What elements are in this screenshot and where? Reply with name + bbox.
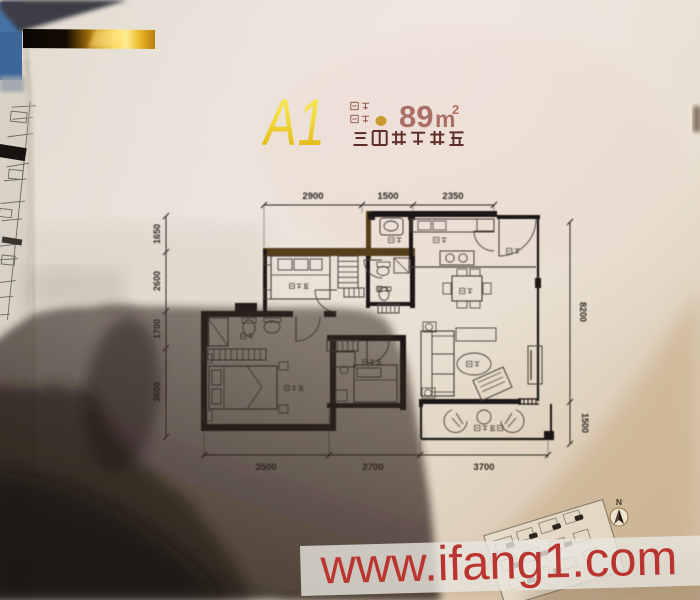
svg-text:2: 2 xyxy=(452,102,459,117)
svg-text:8200: 8200 xyxy=(578,302,588,322)
svg-text:89: 89 xyxy=(399,99,433,134)
svg-text:1500: 1500 xyxy=(377,191,398,202)
svg-text:1500: 1500 xyxy=(580,413,590,433)
svg-text:2350: 2350 xyxy=(442,191,463,202)
svg-text:www.ifang1.com: www.ifang1.com xyxy=(319,531,678,594)
svg-text:3700: 3700 xyxy=(473,462,494,473)
svg-text:N: N xyxy=(616,497,622,507)
svg-text:A1: A1 xyxy=(261,86,325,160)
svg-text:2900: 2900 xyxy=(302,191,323,202)
